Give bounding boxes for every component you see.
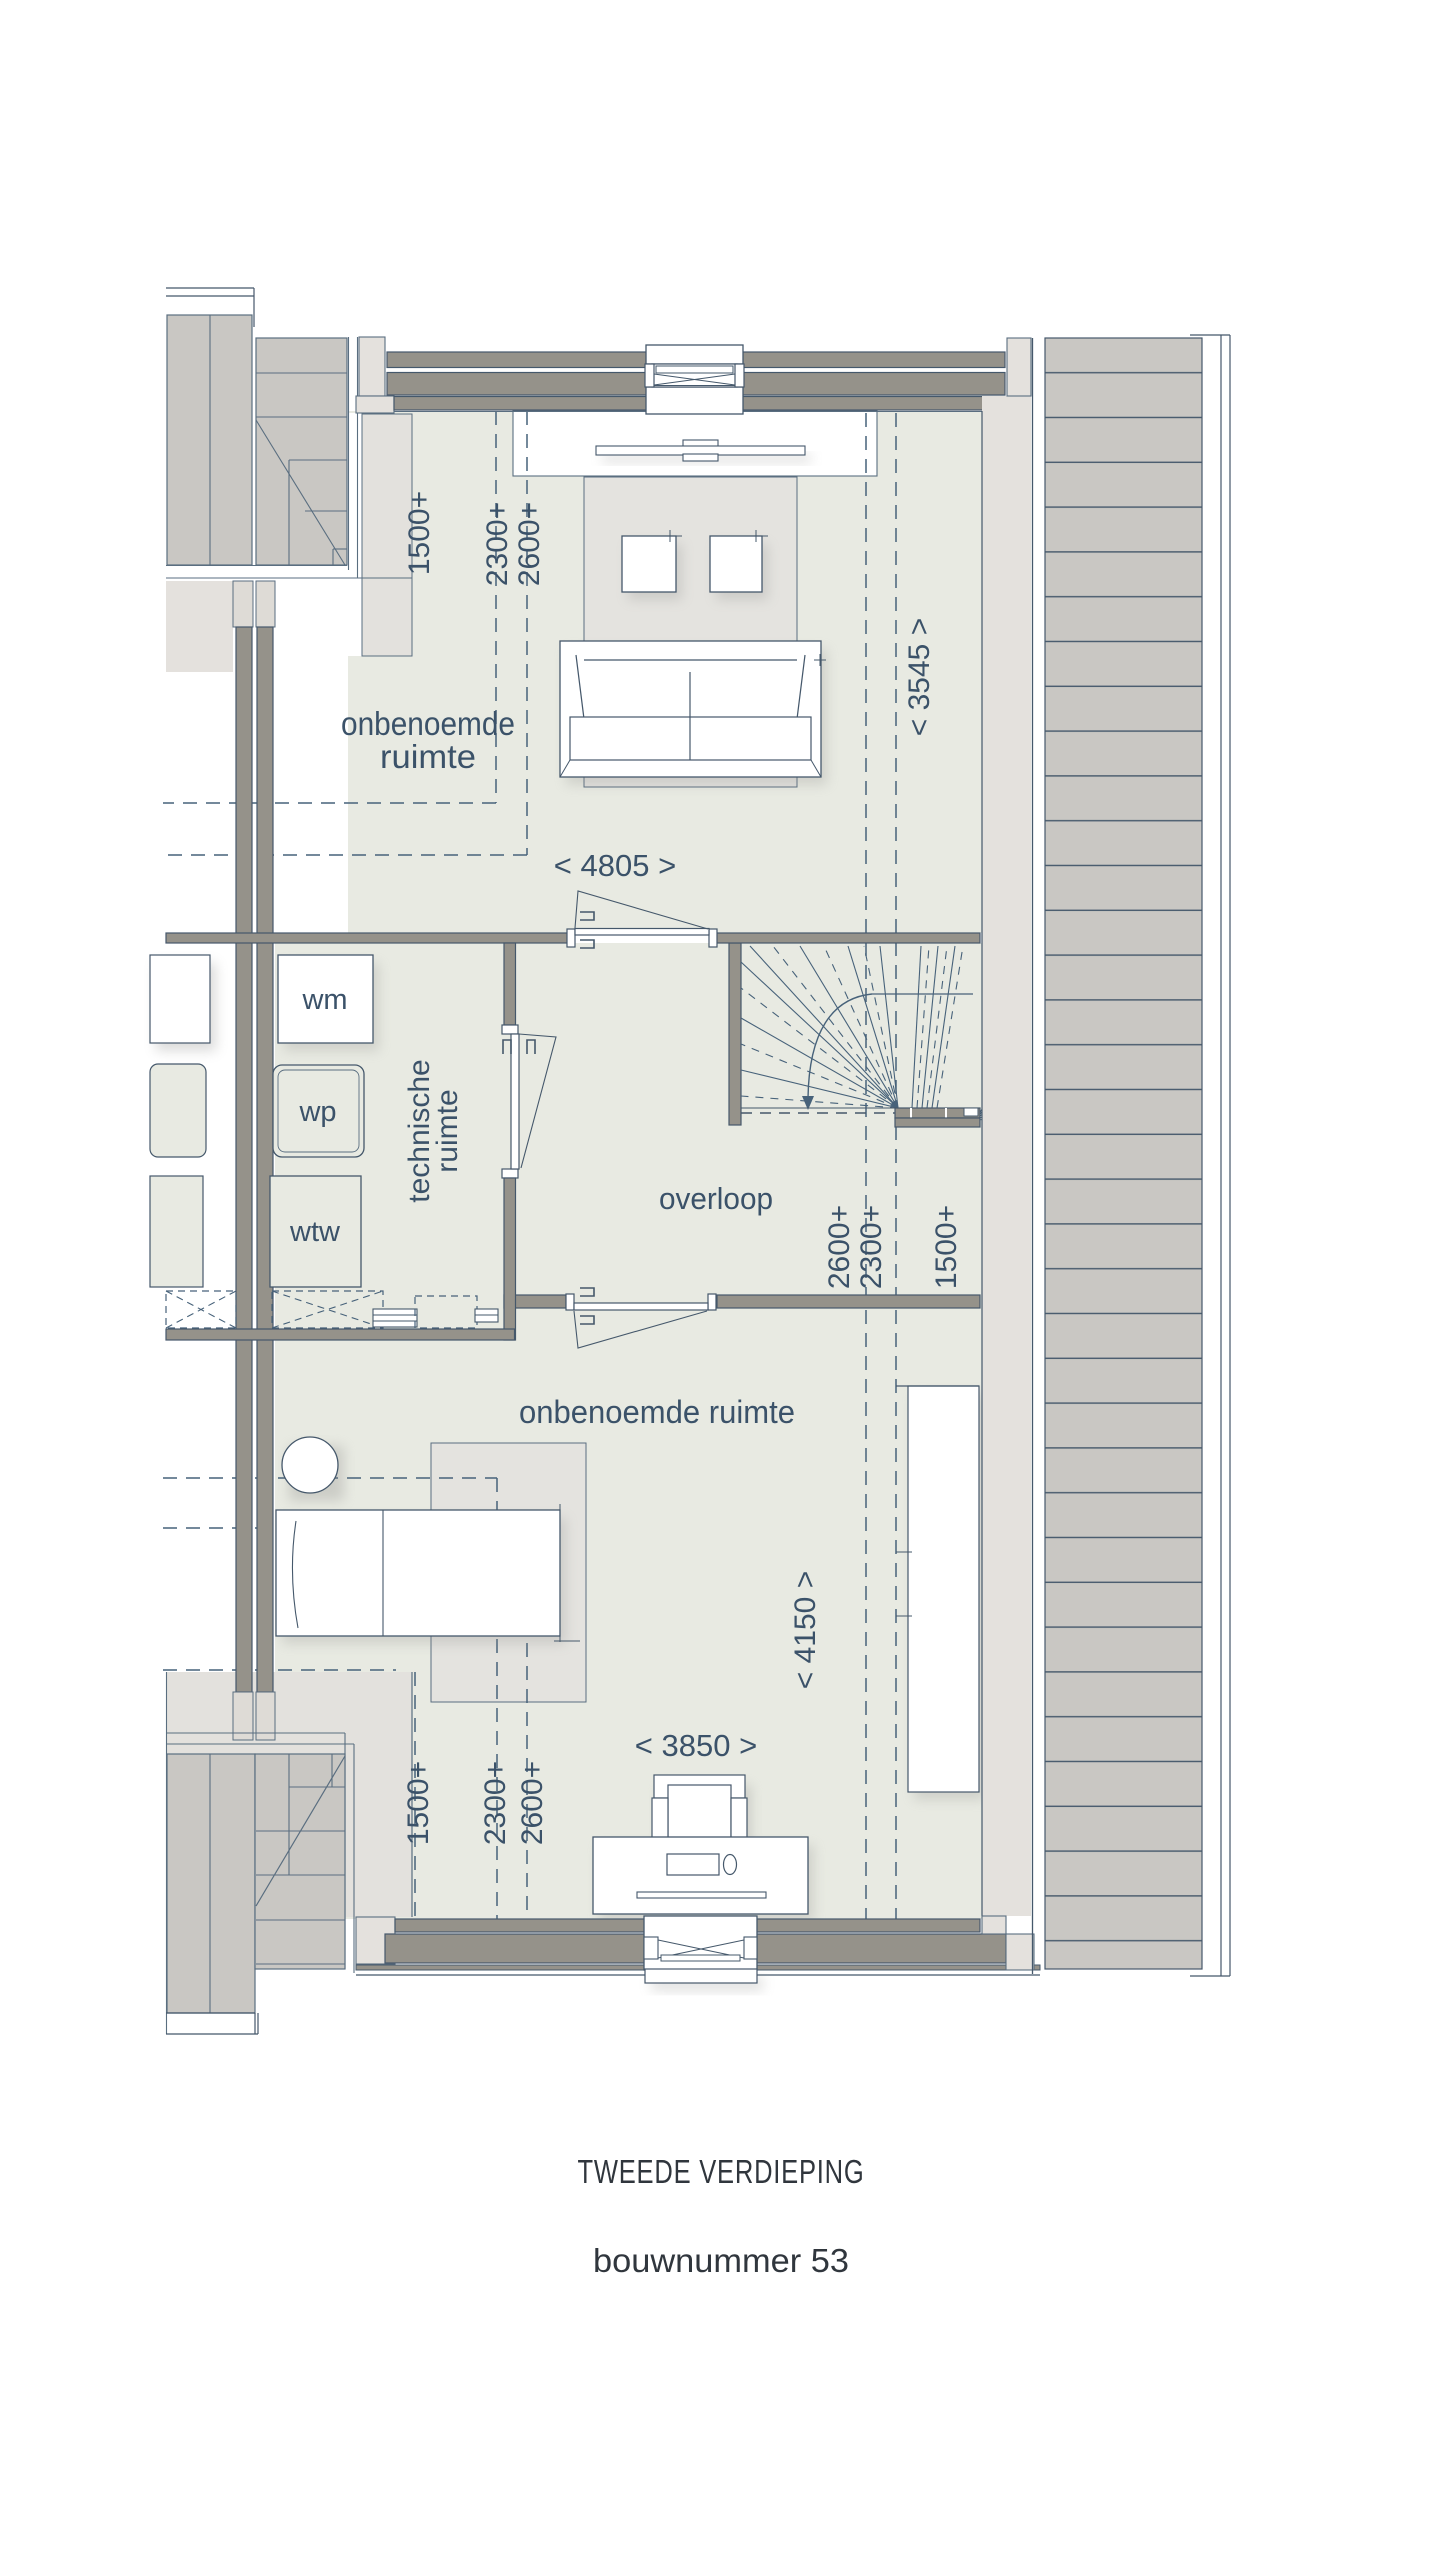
svg-text:1500+: 1500+	[403, 491, 436, 575]
svg-text:1500+: 1500+	[930, 1205, 963, 1289]
svg-text:TWEEDE VERDIEPING: TWEEDE VERDIEPING	[578, 2153, 865, 2190]
svg-text:wm: wm	[301, 984, 347, 1016]
svg-text:bouwnummer 53: bouwnummer 53	[593, 2242, 849, 2279]
svg-text:< 3545 >: < 3545 >	[903, 618, 936, 736]
svg-text:onbenoemde: onbenoemde	[341, 705, 515, 742]
svg-text:2600+: 2600+	[513, 502, 546, 586]
svg-text:< 4805 >: < 4805 >	[554, 848, 676, 883]
svg-text:onbenoemde ruimte: onbenoemde ruimte	[519, 1394, 795, 1430]
svg-text:2300+: 2300+	[479, 1761, 512, 1845]
svg-text:ruimte: ruimte	[380, 738, 476, 775]
svg-text:< 3850 >: < 3850 >	[635, 1728, 757, 1763]
svg-text:< 4150 >: < 4150 >	[789, 1571, 822, 1689]
svg-text:overloop: overloop	[659, 1181, 773, 1216]
svg-text:wp: wp	[298, 1096, 336, 1128]
svg-text:wtw: wtw	[289, 1216, 341, 1248]
svg-text:2300+: 2300+	[855, 1205, 888, 1289]
svg-text:2300+: 2300+	[481, 502, 514, 586]
svg-text:1500+: 1500+	[402, 1761, 435, 1845]
svg-text:2600+: 2600+	[823, 1205, 856, 1289]
svg-text:2600+: 2600+	[516, 1761, 549, 1845]
svg-text:ruimte: ruimte	[431, 1089, 464, 1172]
